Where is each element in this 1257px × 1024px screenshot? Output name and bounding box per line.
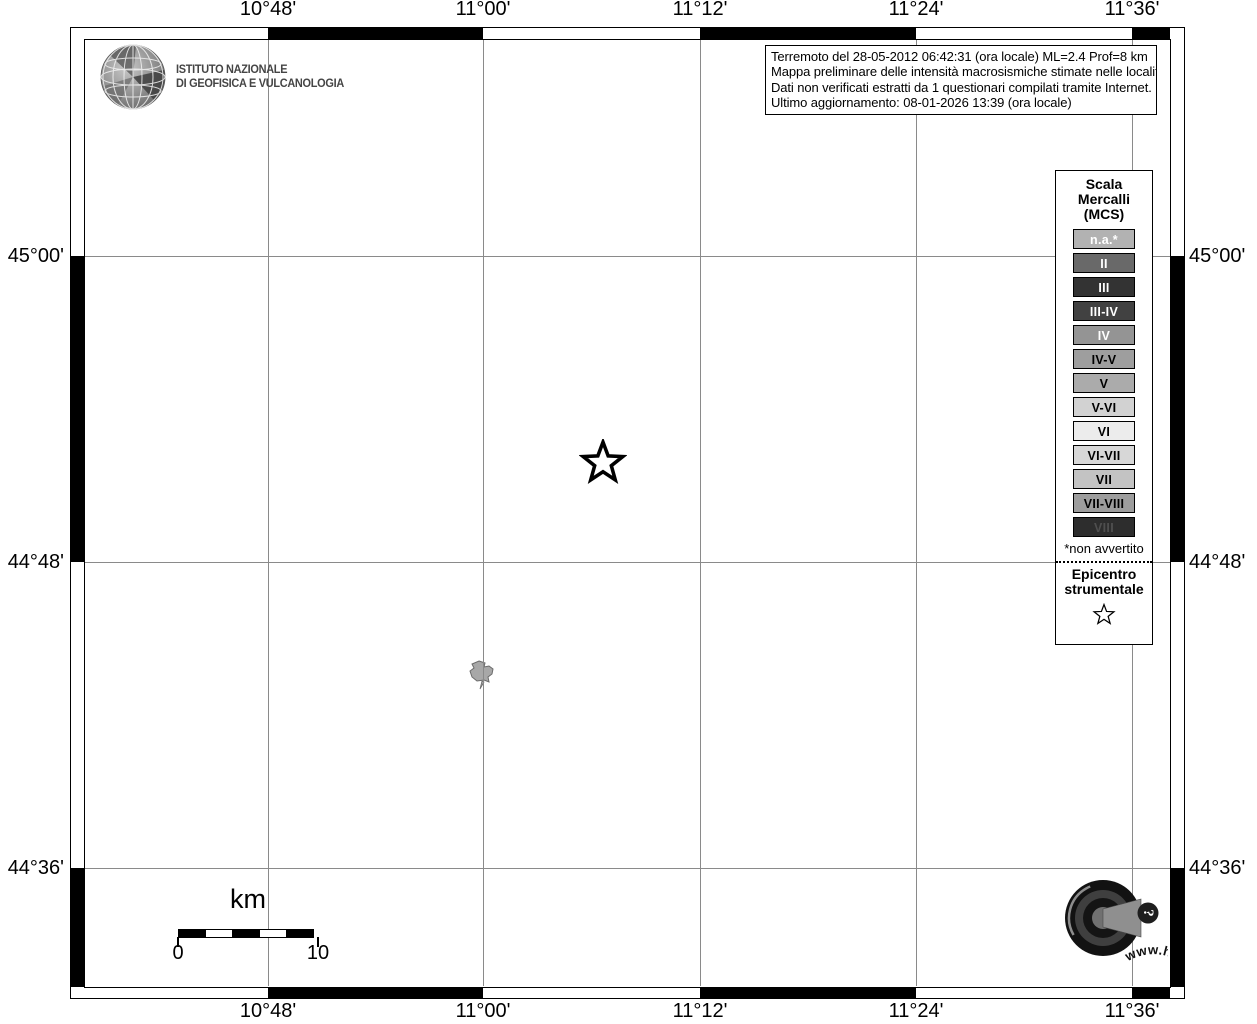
lon-label-bottom: 11°12' <box>673 1000 728 1023</box>
mcs-intensity-list: n.a.*IIIIIIII-IVIVIV-VVV-VIVIVI-VIIVIIVI… <box>1056 229 1152 537</box>
frame-band <box>1171 256 1184 562</box>
mcs-intensity-II: II <box>1073 253 1135 273</box>
legend-footnote: *non avvertito <box>1056 541 1152 556</box>
frame-band <box>1132 988 1170 999</box>
epicenter-star-marker <box>579 439 627 487</box>
mcs-intensity-VI: VI <box>1073 421 1135 441</box>
mcs-intensity-VI-VII: VI-VII <box>1073 445 1135 465</box>
legend-title-line1: Scala <box>1056 177 1152 192</box>
frame-band <box>71 256 84 562</box>
lon-label-top: 11°24' <box>889 0 944 21</box>
legend-separator <box>1056 561 1152 563</box>
lon-label-top: 11°12' <box>673 0 728 21</box>
svg-text:www.haisentitoilterremoto.it: www.haisentitoilterremoto.it <box>1122 942 1168 983</box>
lat-label-left: 44°48' <box>0 551 64 574</box>
lat-label-right: 44°36' <box>1189 857 1245 880</box>
mcs-intensity-III: III <box>1073 277 1135 297</box>
legend-title-line3: (MCS) <box>1056 207 1152 222</box>
legend-epicenter-star-icon <box>1092 603 1116 627</box>
legend-title-line2: Mercalli <box>1056 192 1152 207</box>
legend-epicenter-line2: strumentale <box>1056 582 1152 597</box>
mcs-intensity-VIII: VIII <box>1073 517 1135 537</box>
lat-label-right: 45°00' <box>1189 245 1245 268</box>
logo-question-mark: ? <box>1140 909 1156 917</box>
ingv-globe-icon <box>98 42 168 112</box>
mcs-intensity-IV: IV <box>1073 325 1135 345</box>
frame-band <box>1171 868 1184 987</box>
legend-epicenter-line1: Epicentro <box>1056 567 1152 582</box>
frame-band <box>700 28 916 39</box>
ingv-name-line1: ISTITUTO NAZIONALE <box>176 63 344 77</box>
mcs-intensity-VII-VIII: VII-VIII <box>1073 493 1135 513</box>
lat-label-left: 45°00' <box>0 245 64 268</box>
frame-band <box>1132 28 1170 39</box>
frame-band <box>268 28 483 39</box>
map-frame-inner <box>84 39 1171 988</box>
lat-label-left: 44°36' <box>0 857 64 880</box>
ingv-name-line2: DI GEOFISICA E VULCANOLOGIA <box>176 77 344 91</box>
mcs-intensity-III-IV: III-IV <box>1073 301 1135 321</box>
mcs-legend: Scala Mercalli (MCS) n.a.*IIIIIIII-IVIVI… <box>1055 170 1153 645</box>
lon-label-top: 11°00' <box>456 0 511 21</box>
lon-label-bottom: 10°48' <box>240 1000 296 1023</box>
frame-band <box>268 988 483 999</box>
frame-band <box>71 868 84 987</box>
lon-label-bottom: 11°00' <box>456 1000 511 1023</box>
lat-label-right: 44°48' <box>1189 551 1245 574</box>
macroseismic-map: 10°48' 11°00' 11°12' 11°24' 11°36' 10°48… <box>0 0 1257 1024</box>
lon-label-bottom: 11°36' <box>1105 1000 1160 1023</box>
ingv-logo: ISTITUTO NAZIONALE DI GEOFISICA E VULCAN… <box>98 42 353 112</box>
info-line-event: Terremoto del 28-05-2012 06:42:31 (ora l… <box>771 49 1151 64</box>
haisentitoilterremoto-logo: www.haisentitoilterremoto.it ? <box>1038 853 1168 983</box>
mcs-intensity-n.a.*: n.a.* <box>1073 229 1135 249</box>
mcs-intensity-IV-V: IV-V <box>1073 349 1135 369</box>
mcs-intensity-V-VI: V-VI <box>1073 397 1135 417</box>
logo-url-ring-text: www.haisentitoilterremoto.it <box>1122 942 1168 983</box>
mcs-intensity-V: V <box>1073 373 1135 393</box>
frame-band <box>700 988 916 999</box>
lon-label-bottom: 11°24' <box>889 1000 944 1023</box>
mcs-intensity-VII: VII <box>1073 469 1135 489</box>
info-line-map-type: Mappa preliminare delle intensità macros… <box>771 64 1151 79</box>
info-line-data-source: Dati non verificati estratti da 1 questi… <box>771 80 1151 95</box>
lon-label-top: 10°48' <box>240 0 296 21</box>
info-line-updated: Ultimo aggiornamento: 08-01-2026 13:39 (… <box>771 95 1151 110</box>
lon-label-top: 11°36' <box>1105 0 1160 21</box>
earthquake-info-box: Terremoto del 28-05-2012 06:42:31 (ora l… <box>765 45 1157 115</box>
